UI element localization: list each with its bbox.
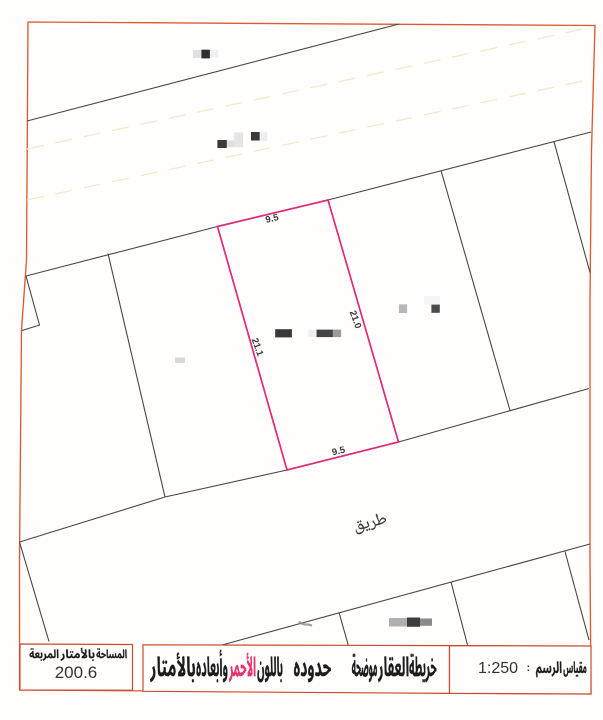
svg-text:1:250: 1:250: [478, 660, 518, 677]
svg-text:200.6: 200.6: [55, 663, 98, 682]
svg-text::: :: [527, 662, 531, 674]
